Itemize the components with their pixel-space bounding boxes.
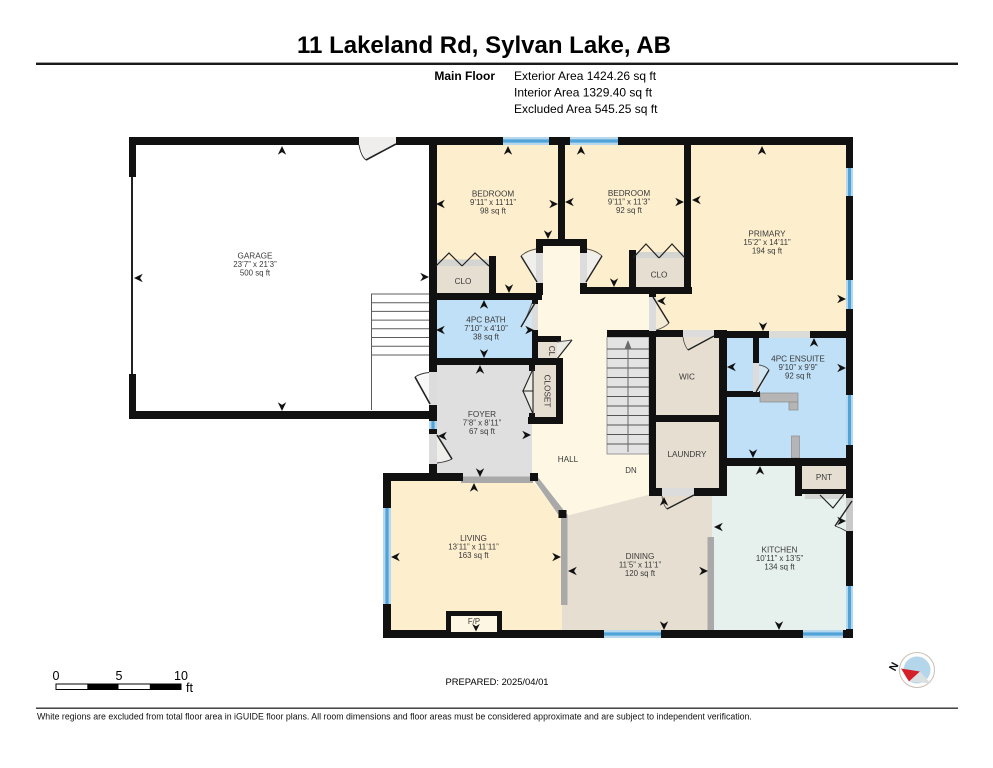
svg-text:DN: DN bbox=[625, 466, 637, 475]
svg-text:163 sq ft: 163 sq ft bbox=[458, 551, 489, 560]
svg-text:120 sq ft: 120 sq ft bbox=[625, 569, 656, 578]
svg-text:98 sq ft: 98 sq ft bbox=[480, 207, 507, 216]
svg-text:ft: ft bbox=[186, 681, 193, 695]
svg-text:Exterior Area 1424.26 sq ft: Exterior Area 1424.26 sq ft bbox=[514, 69, 657, 83]
svg-text:92 sq ft: 92 sq ft bbox=[785, 372, 812, 381]
svg-text:CL: CL bbox=[547, 346, 556, 357]
svg-text:CLOSET: CLOSET bbox=[543, 375, 552, 408]
svg-text:0: 0 bbox=[53, 669, 60, 683]
svg-text:92 sq ft: 92 sq ft bbox=[616, 206, 643, 215]
svg-text:38 sq ft: 38 sq ft bbox=[473, 333, 500, 342]
svg-text:Excluded Area 545.25 sq ft: Excluded Area 545.25 sq ft bbox=[514, 102, 658, 116]
svg-text:PREPARED: 2025/04/01: PREPARED: 2025/04/01 bbox=[445, 676, 548, 687]
svg-text:500 sq ft: 500 sq ft bbox=[240, 269, 271, 278]
svg-text:PNT: PNT bbox=[816, 473, 832, 482]
svg-text:CLO: CLO bbox=[651, 271, 668, 280]
svg-text:Main Floor: Main Floor bbox=[434, 69, 495, 83]
svg-text:11 Lakeland Rd, Sylvan Lake, A: 11 Lakeland Rd, Sylvan Lake, AB bbox=[297, 32, 671, 59]
svg-text:LAUNDRY: LAUNDRY bbox=[668, 450, 708, 459]
svg-text:5: 5 bbox=[116, 669, 123, 683]
svg-text:F/P: F/P bbox=[468, 617, 480, 626]
svg-text:CLO: CLO bbox=[455, 277, 472, 286]
svg-text:HALL: HALL bbox=[558, 455, 579, 464]
svg-text:194 sq ft: 194 sq ft bbox=[752, 247, 783, 256]
svg-text:Interior Area 1329.40 sq ft: Interior Area 1329.40 sq ft bbox=[514, 86, 653, 100]
svg-text:White regions are excluded fro: White regions are excluded from total fl… bbox=[37, 712, 752, 722]
svg-text:67 sq ft: 67 sq ft bbox=[469, 427, 496, 436]
svg-text:134 sq ft: 134 sq ft bbox=[764, 563, 795, 572]
svg-text:WIC: WIC bbox=[679, 373, 695, 382]
